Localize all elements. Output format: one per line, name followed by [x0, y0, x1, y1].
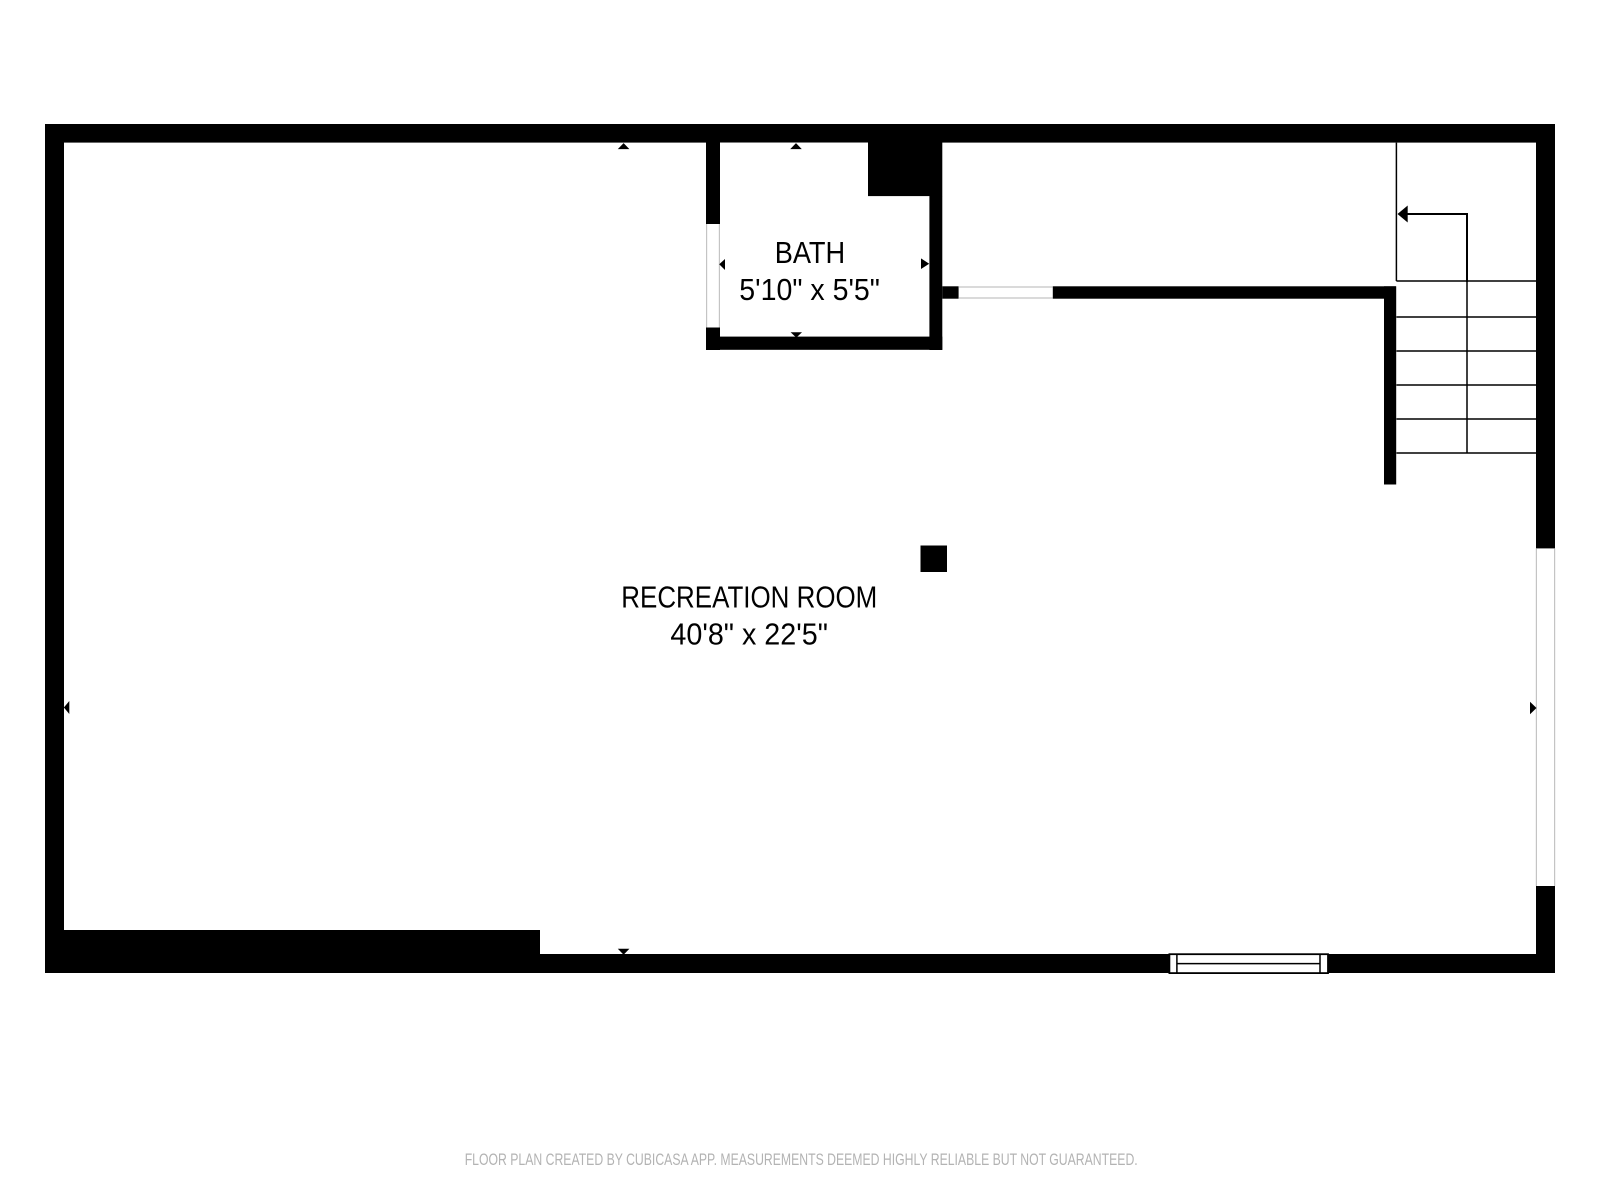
svg-text:5'10" x 5'5": 5'10" x 5'5"	[739, 272, 880, 307]
svg-text:BATH: BATH	[775, 235, 846, 270]
svg-text:RECREATION ROOM: RECREATION ROOM	[621, 579, 877, 614]
svg-text:40'8" x 22'5": 40'8" x 22'5"	[670, 616, 828, 651]
svg-text:FLOOR PLAN CREATED BY CUBICASA: FLOOR PLAN CREATED BY CUBICASA APP. MEAS…	[465, 1150, 1138, 1169]
